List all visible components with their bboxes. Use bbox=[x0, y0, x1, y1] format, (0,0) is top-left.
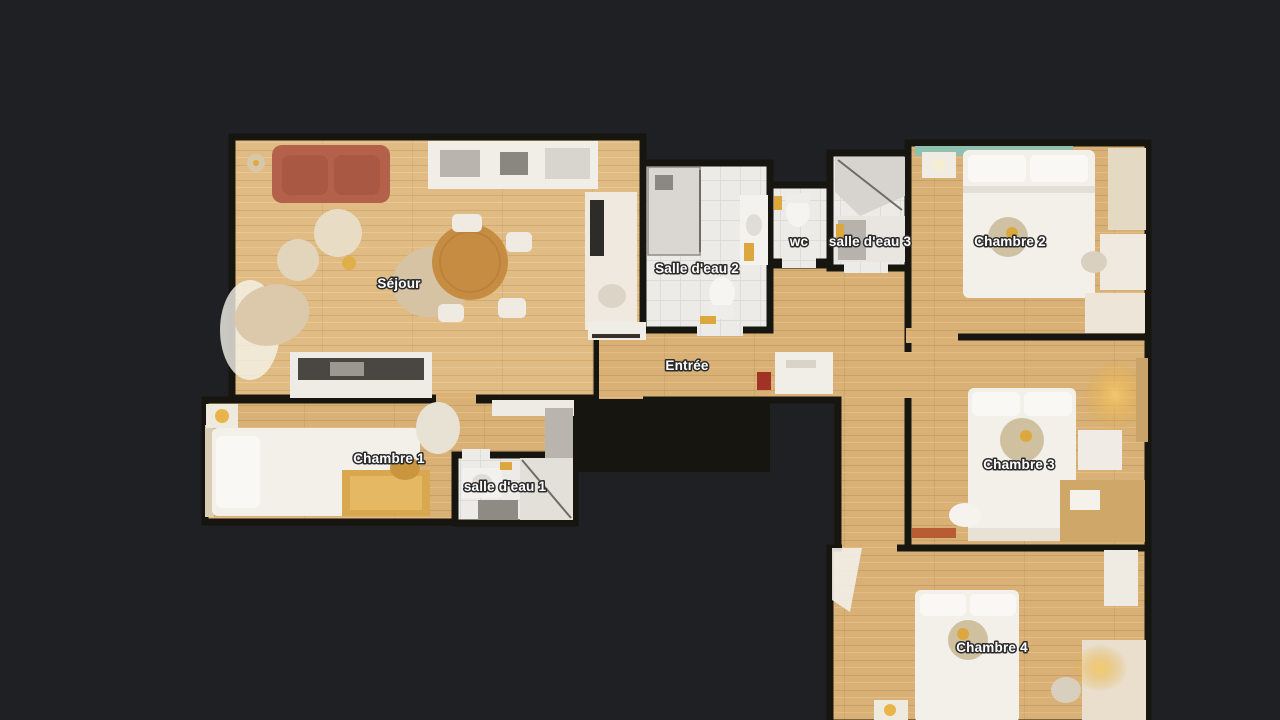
desk-chair bbox=[1051, 677, 1081, 703]
sofa-cushion bbox=[282, 155, 328, 195]
toilet bbox=[709, 277, 735, 309]
lamp-icon bbox=[215, 409, 229, 423]
decor-gold bbox=[957, 628, 969, 640]
label-entree: Entrée bbox=[665, 358, 709, 373]
label-salle-deau-2: Salle d'eau 2 bbox=[655, 261, 739, 276]
rug bbox=[912, 528, 956, 538]
label-chambre-4: Chambre 4 bbox=[956, 640, 1028, 655]
cushion bbox=[949, 503, 981, 527]
door-salle-deau-3 bbox=[844, 261, 888, 273]
desk-chair bbox=[1081, 251, 1107, 273]
lamp-icon bbox=[884, 704, 896, 716]
shoe-rack bbox=[757, 372, 771, 390]
kitchen-sink bbox=[440, 150, 480, 177]
desk-top bbox=[350, 476, 422, 510]
shower-drain bbox=[655, 175, 673, 190]
desk-paper bbox=[1070, 490, 1100, 510]
floorplan-canvas: Séjour Salle d'eau 2 wc salle d'eau 3 Ch… bbox=[0, 0, 1280, 720]
door-wc bbox=[782, 255, 816, 268]
label-salle-deau-3: salle d'eau 3 bbox=[829, 234, 912, 249]
pillow bbox=[1024, 392, 1072, 416]
dining-chair bbox=[438, 304, 464, 322]
bench bbox=[1085, 293, 1145, 333]
cooktop bbox=[500, 152, 528, 175]
void-area bbox=[575, 400, 770, 472]
label-sejour: Séjour bbox=[377, 276, 421, 291]
pouf bbox=[277, 239, 319, 281]
side-table bbox=[1078, 430, 1122, 470]
towel-gold bbox=[700, 316, 716, 324]
wardrobe bbox=[545, 408, 573, 458]
pouf bbox=[314, 209, 362, 257]
label-wc: wc bbox=[789, 234, 809, 249]
desk bbox=[1060, 480, 1145, 542]
pillow bbox=[968, 155, 1026, 182]
door-chambre-2 bbox=[906, 328, 958, 343]
pillow bbox=[1030, 155, 1088, 182]
pillow bbox=[216, 436, 260, 508]
console-table bbox=[775, 352, 833, 394]
wardrobe bbox=[1108, 148, 1146, 230]
duvet-fold bbox=[963, 186, 1095, 193]
kitchen-appliance bbox=[545, 148, 590, 179]
label-chambre-3: Chambre 3 bbox=[983, 457, 1055, 472]
door-salle-deau-2 bbox=[697, 323, 743, 336]
bath-mat bbox=[478, 500, 518, 520]
decor-gold bbox=[1020, 430, 1032, 442]
towel-gold bbox=[774, 196, 782, 210]
towel-gold bbox=[744, 243, 754, 261]
wardrobe bbox=[1104, 550, 1138, 606]
door-salle-deau-1 bbox=[462, 449, 490, 461]
pillow bbox=[920, 594, 966, 616]
pillow bbox=[972, 392, 1020, 416]
dining-chair bbox=[452, 214, 482, 232]
armchair bbox=[416, 402, 460, 454]
dining-chair bbox=[498, 298, 526, 318]
console-bench-shadow bbox=[592, 334, 640, 338]
pillow bbox=[970, 594, 1016, 616]
towel-gold bbox=[500, 462, 512, 470]
tv-screen bbox=[590, 200, 604, 256]
sofa-cushion bbox=[334, 155, 380, 195]
lamp-glow bbox=[1072, 644, 1128, 692]
sink-basin bbox=[746, 214, 762, 236]
desk-chair bbox=[598, 284, 626, 308]
lamp-icon bbox=[933, 159, 945, 171]
label-salle-deau-1: salle d'eau 1 bbox=[464, 479, 547, 494]
bed-bench bbox=[968, 528, 1076, 541]
dining-chair bbox=[506, 232, 532, 252]
label-chambre-2: Chambre 2 bbox=[974, 234, 1046, 249]
lamp-icon bbox=[253, 160, 259, 166]
door-chambre-3 bbox=[904, 352, 920, 398]
label-chambre-1: Chambre 1 bbox=[353, 451, 425, 466]
dining-table bbox=[432, 224, 508, 300]
decor-gold bbox=[342, 256, 356, 270]
island-sink bbox=[330, 362, 364, 376]
toilet-tank bbox=[786, 193, 810, 203]
wardrobe bbox=[1136, 358, 1148, 442]
console-decor bbox=[786, 360, 816, 368]
